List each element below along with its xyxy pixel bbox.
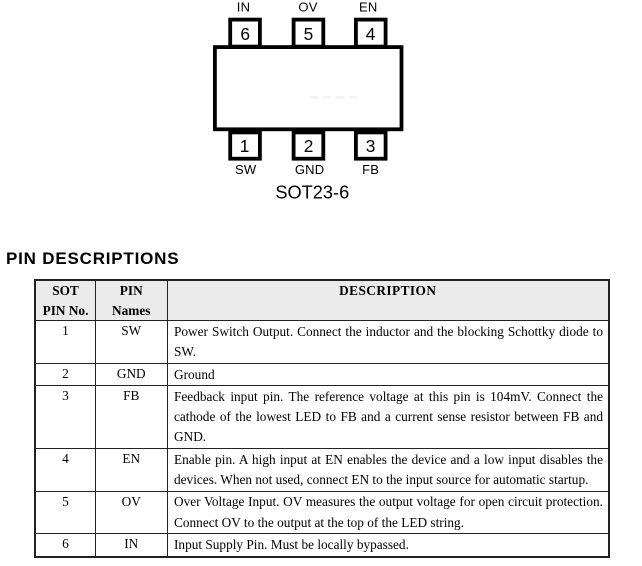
svg-text:6: 6: [240, 24, 250, 44]
svg-text:IN: IN: [237, 0, 250, 15]
svg-text:3: 3: [366, 136, 376, 156]
svg-text:4: 4: [366, 24, 376, 44]
svg-text:OV: OV: [298, 0, 317, 15]
svg-text:1: 1: [240, 136, 250, 156]
svg-text:5: 5: [304, 24, 314, 44]
svg-text:SOT23-6: SOT23-6: [275, 183, 349, 203]
svg-text:FB: FB: [362, 162, 379, 177]
svg-text:2: 2: [304, 136, 314, 156]
svg-text:GND: GND: [295, 162, 325, 177]
svg-text:SW: SW: [235, 162, 257, 177]
svg-text:EN: EN: [359, 0, 377, 15]
